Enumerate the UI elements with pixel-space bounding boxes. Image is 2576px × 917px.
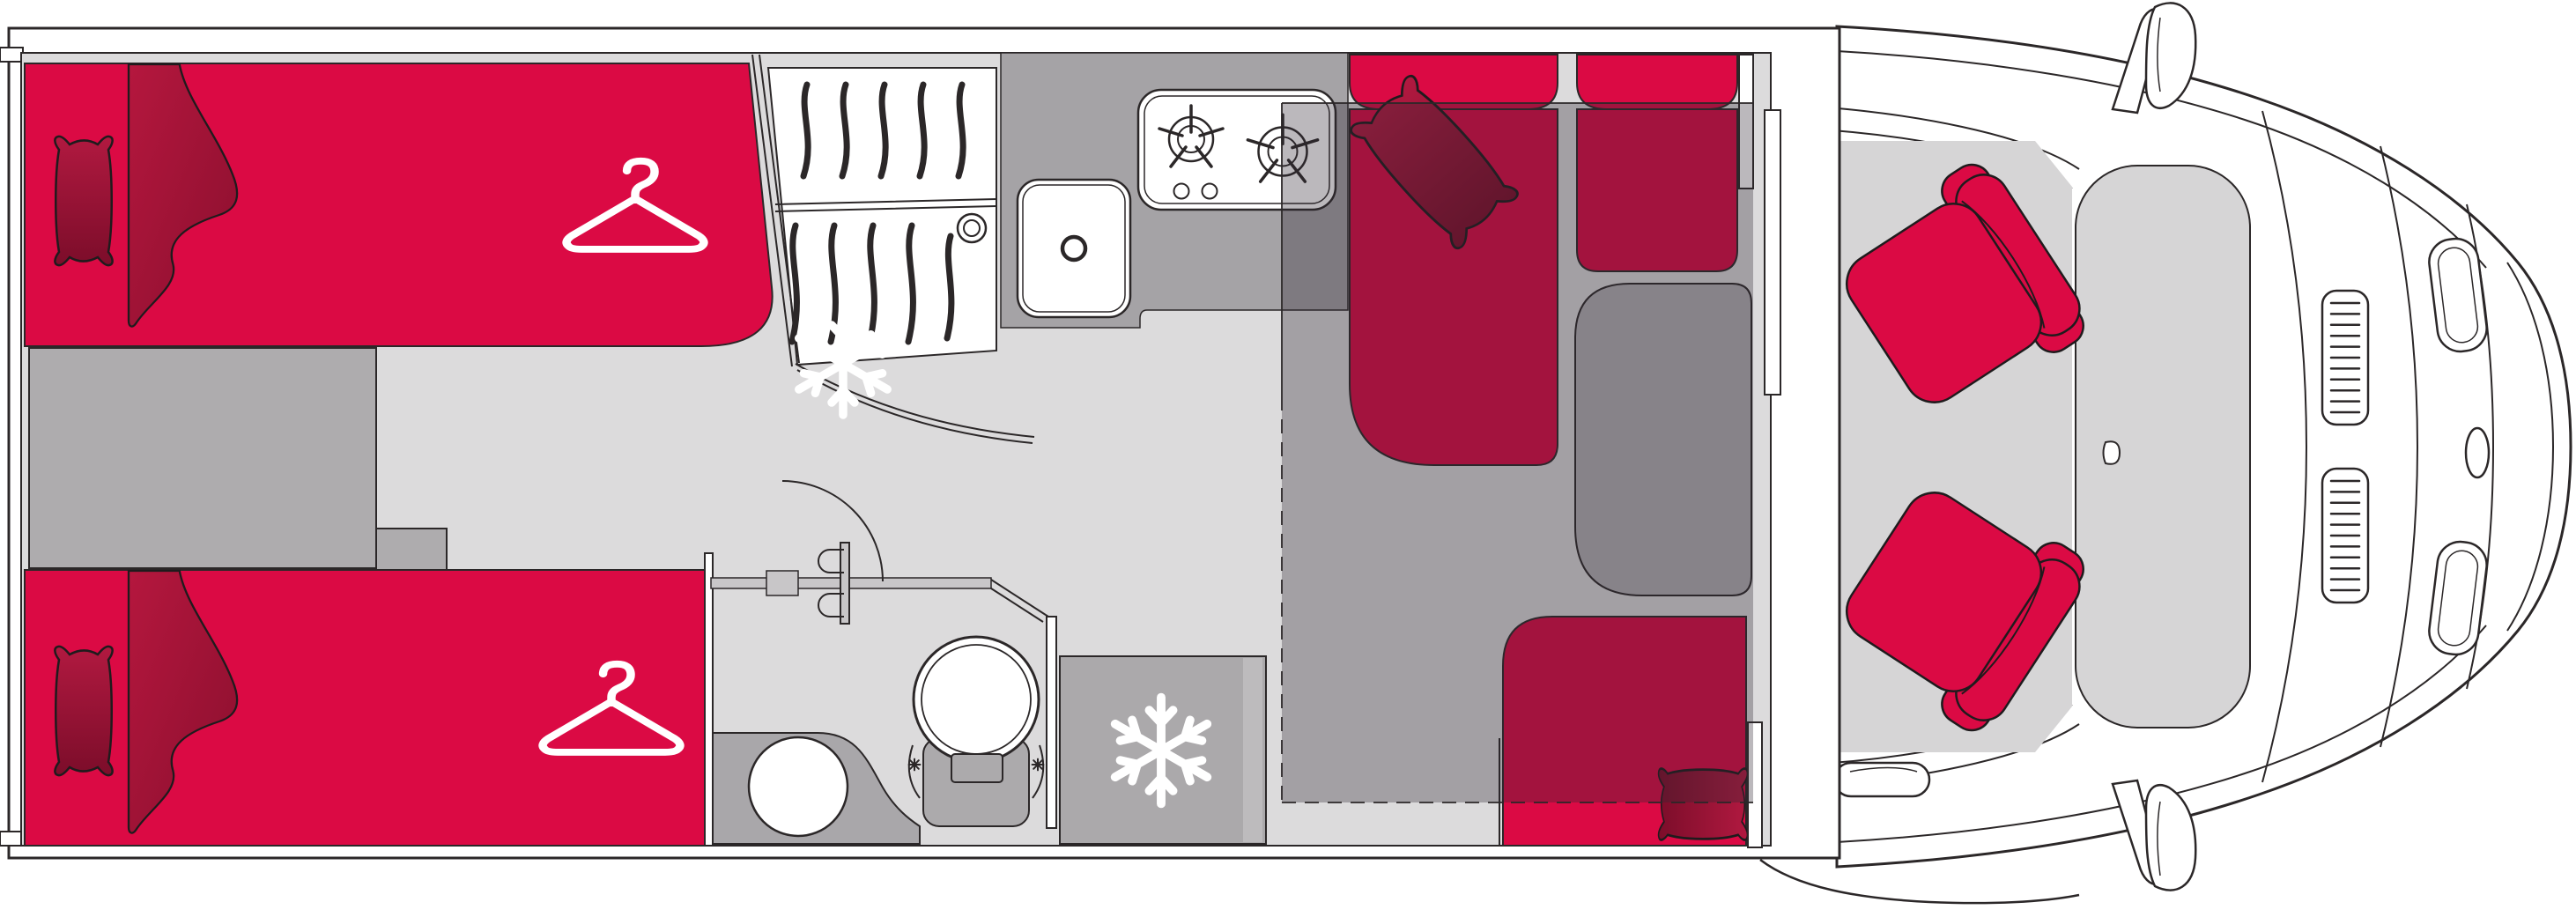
drop-down-bed-overlay — [1282, 103, 1753, 802]
toilet-bolt — [1033, 759, 1044, 771]
kitchen-sink — [1018, 180, 1130, 317]
entry-step-line — [1760, 860, 2079, 903]
fridge-edge-highlight — [1243, 658, 1262, 842]
hob-knob — [1203, 184, 1218, 199]
rail-knob — [958, 214, 986, 242]
bonnet-vent-grille — [2322, 291, 2368, 425]
wall-tab-bottom-left — [0, 832, 23, 846]
windshield — [2076, 166, 2250, 728]
bed-foot-step — [376, 529, 447, 570]
wall-tab-top-left — [0, 48, 23, 62]
toilet-lid — [914, 637, 1039, 762]
motorhome-floorplan — [0, 0, 2576, 917]
sofa-backrest — [1350, 55, 1558, 109]
sofa-backrest — [1577, 55, 1737, 109]
washroom-wall-right — [1047, 617, 1056, 828]
washbasin — [749, 737, 848, 836]
bedside-cabinet — [29, 348, 376, 568]
pillow — [55, 647, 112, 775]
folding-door-track — [711, 578, 991, 588]
sliding-door-handle — [1834, 763, 1929, 796]
washroom-wall-left — [705, 553, 713, 846]
fog-light-oval — [2466, 428, 2489, 477]
toilet — [909, 637, 1044, 826]
toilet-bolt — [909, 759, 921, 771]
door-handle-cup — [2104, 441, 2121, 464]
toilet-hinge — [951, 754, 1003, 782]
floorplan-canvas — [0, 0, 2576, 917]
pillow — [55, 137, 112, 265]
hob-knob — [1174, 184, 1189, 199]
cab-partition-wall — [1765, 110, 1780, 395]
sink-drain — [1062, 237, 1085, 260]
door-bracket — [766, 571, 798, 595]
fridge — [1060, 656, 1266, 844]
